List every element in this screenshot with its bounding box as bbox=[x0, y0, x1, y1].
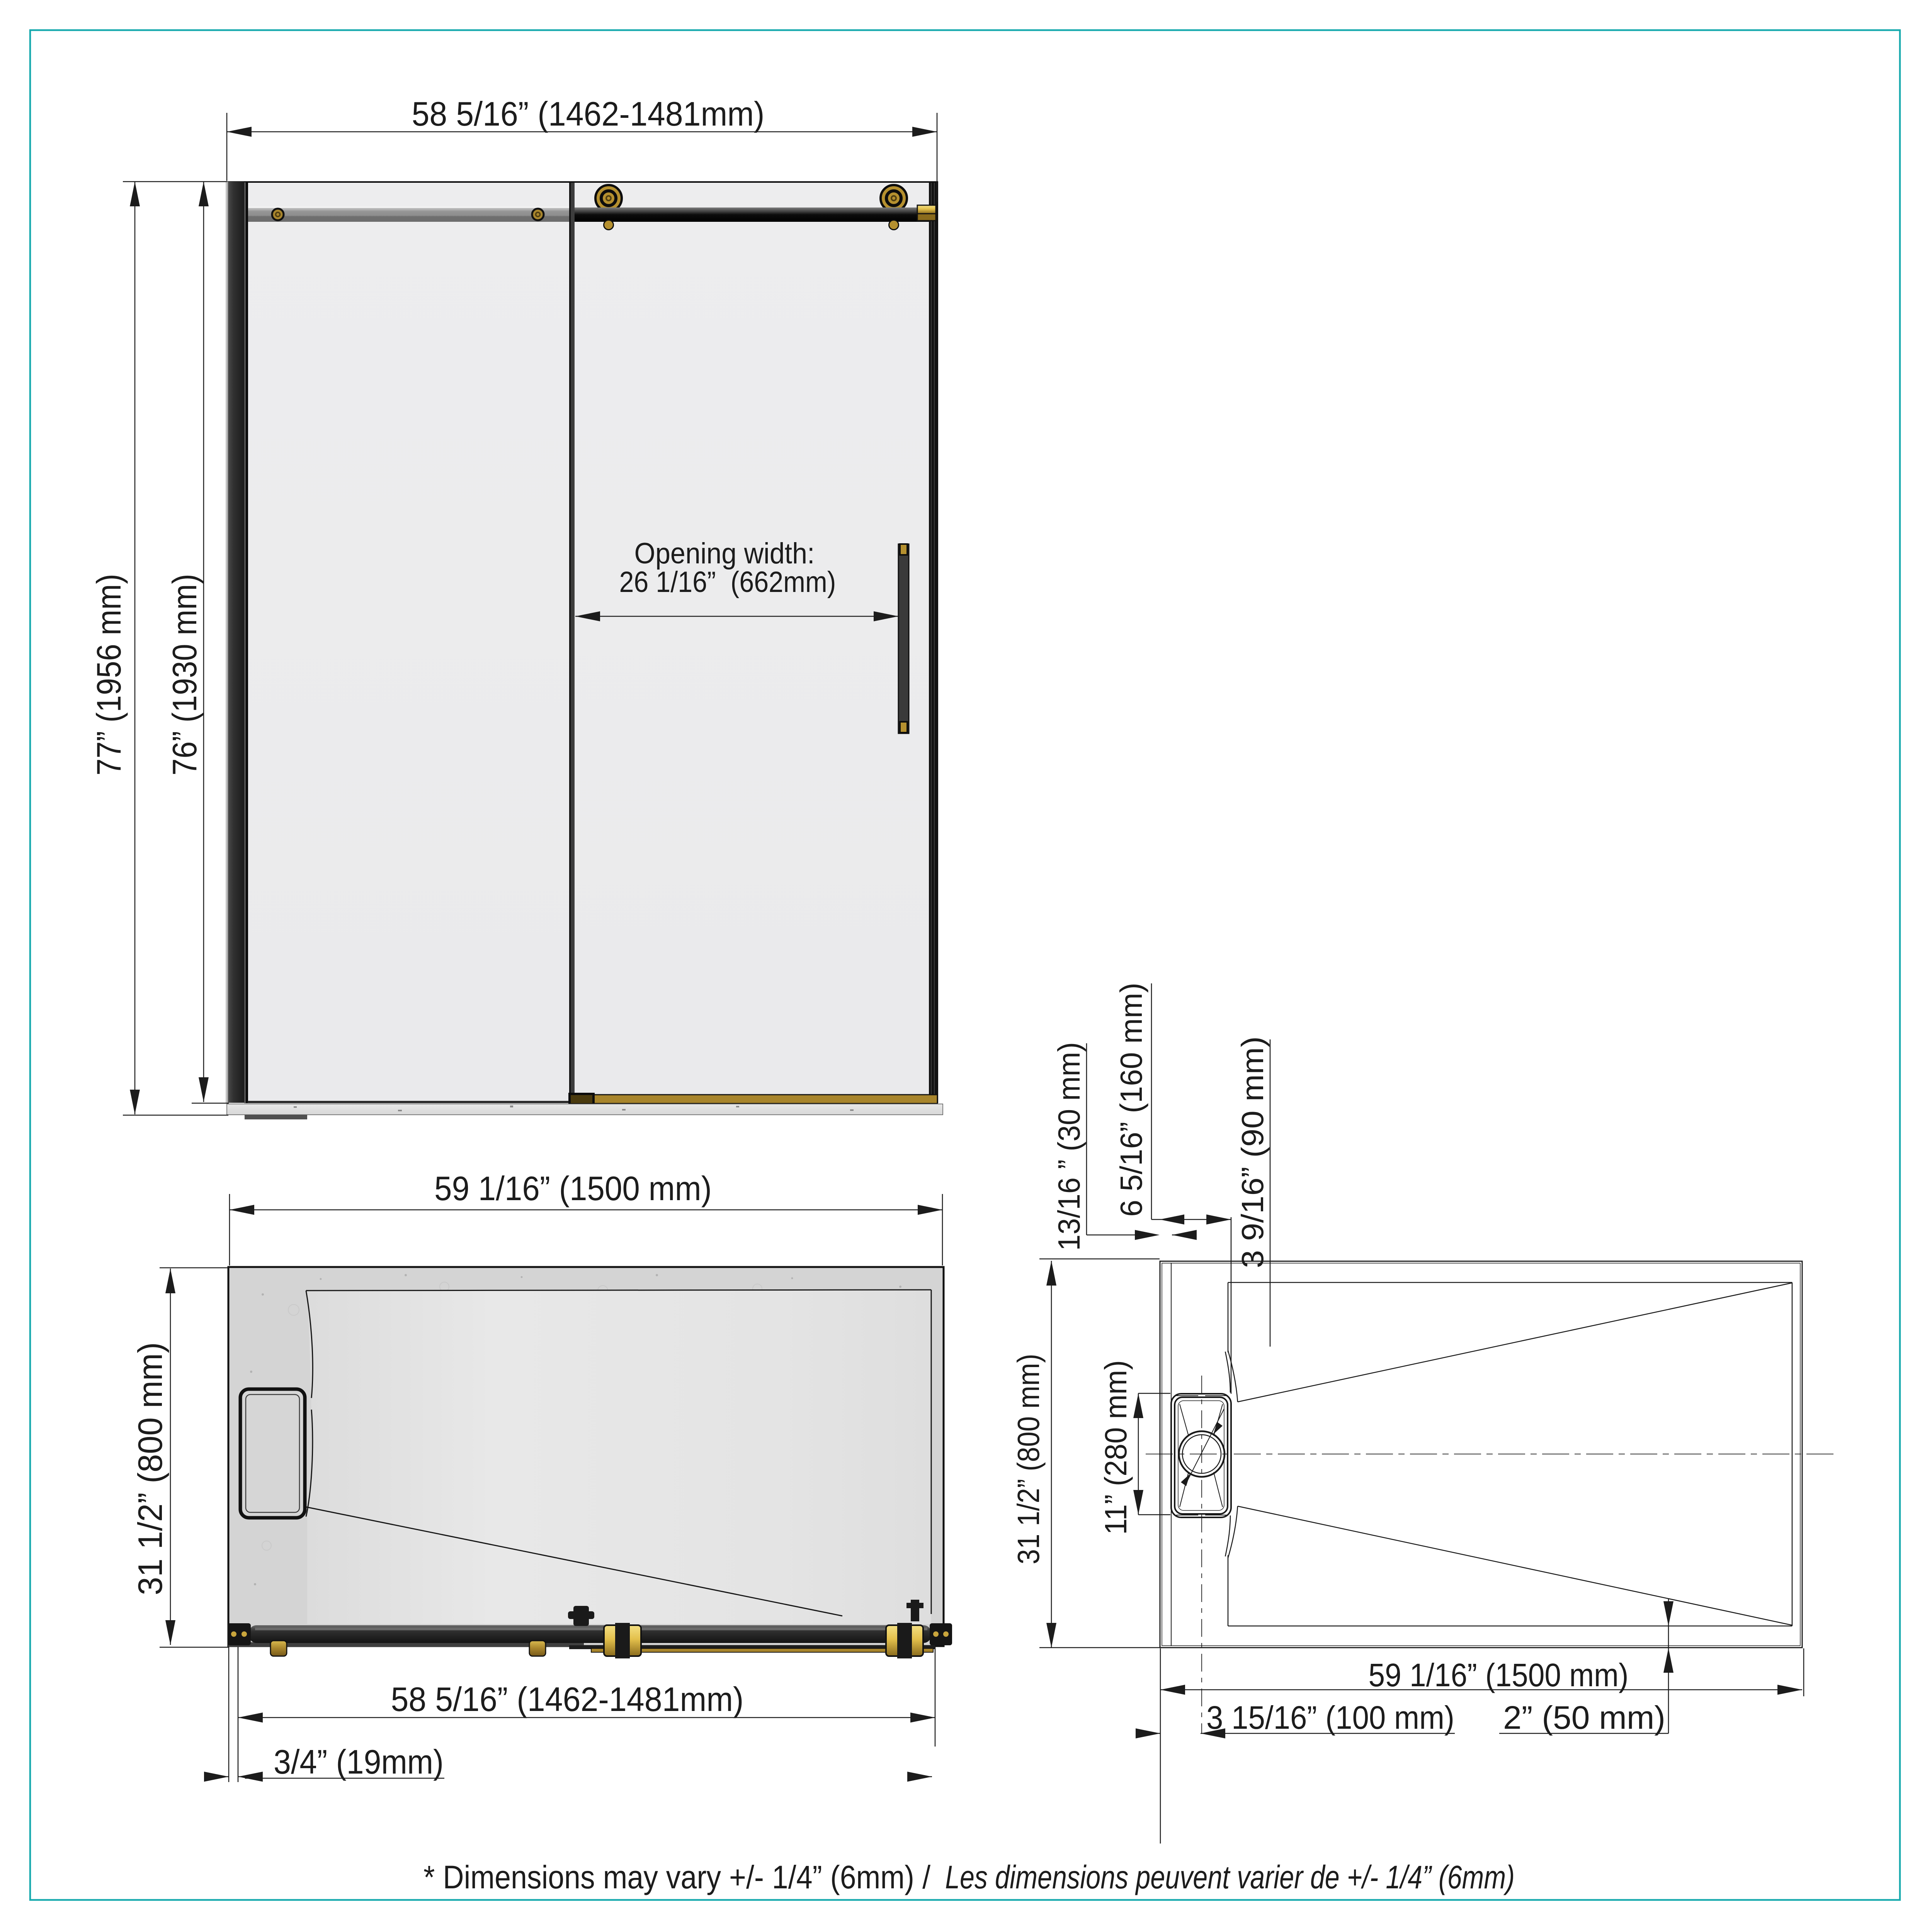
svg-text:59 1/16” (1500 mm): 59 1/16” (1500 mm) bbox=[434, 1169, 712, 1207]
svg-text:3 9/16” (90 mm): 3 9/16” (90 mm) bbox=[1235, 1036, 1270, 1268]
svg-text:58 5/16” (1462-1481mm): 58 5/16” (1462-1481mm) bbox=[391, 1680, 744, 1718]
svg-text:58 5/16” (1462-1481mm): 58 5/16” (1462-1481mm) bbox=[412, 95, 765, 133]
svg-text:2” (50 mm): 2” (50 mm) bbox=[1503, 1699, 1665, 1736]
svg-text:31 1/2” (800 mm): 31 1/2” (800 mm) bbox=[1011, 1354, 1046, 1565]
svg-text:59 1/16” (1500 mm): 59 1/16” (1500 mm) bbox=[1369, 1657, 1629, 1693]
svg-text:3 15/16” (100 mm): 3 15/16” (100 mm) bbox=[1206, 1699, 1454, 1736]
svg-text:13/16 ” (30 mm): 13/16 ” (30 mm) bbox=[1052, 1042, 1086, 1251]
svg-text:3/4” (19mm): 3/4” (19mm) bbox=[274, 1743, 444, 1781]
svg-text:* Dimensions may vary +/- 1/4”: * Dimensions may vary +/- 1/4” (6mm) / bbox=[423, 1859, 931, 1895]
svg-text:11” (280 mm): 11” (280 mm) bbox=[1099, 1360, 1133, 1535]
svg-text:26 1/16” (662mm): 26 1/16” (662mm) bbox=[619, 566, 836, 599]
svg-text:6 5/16” (160 mm): 6 5/16” (160 mm) bbox=[1114, 983, 1148, 1217]
svg-text:77” (1956 mm): 77” (1956 mm) bbox=[90, 574, 128, 776]
svg-text:76” (1930 mm): 76” (1930 mm) bbox=[165, 574, 204, 776]
svg-text:Opening width:: Opening width: bbox=[634, 537, 815, 570]
svg-text:Les dimensions peuvent varier: Les dimensions peuvent varier de +/- 1/4… bbox=[945, 1859, 1515, 1895]
svg-text:31 1/2” (800 mm): 31 1/2” (800 mm) bbox=[131, 1342, 169, 1595]
